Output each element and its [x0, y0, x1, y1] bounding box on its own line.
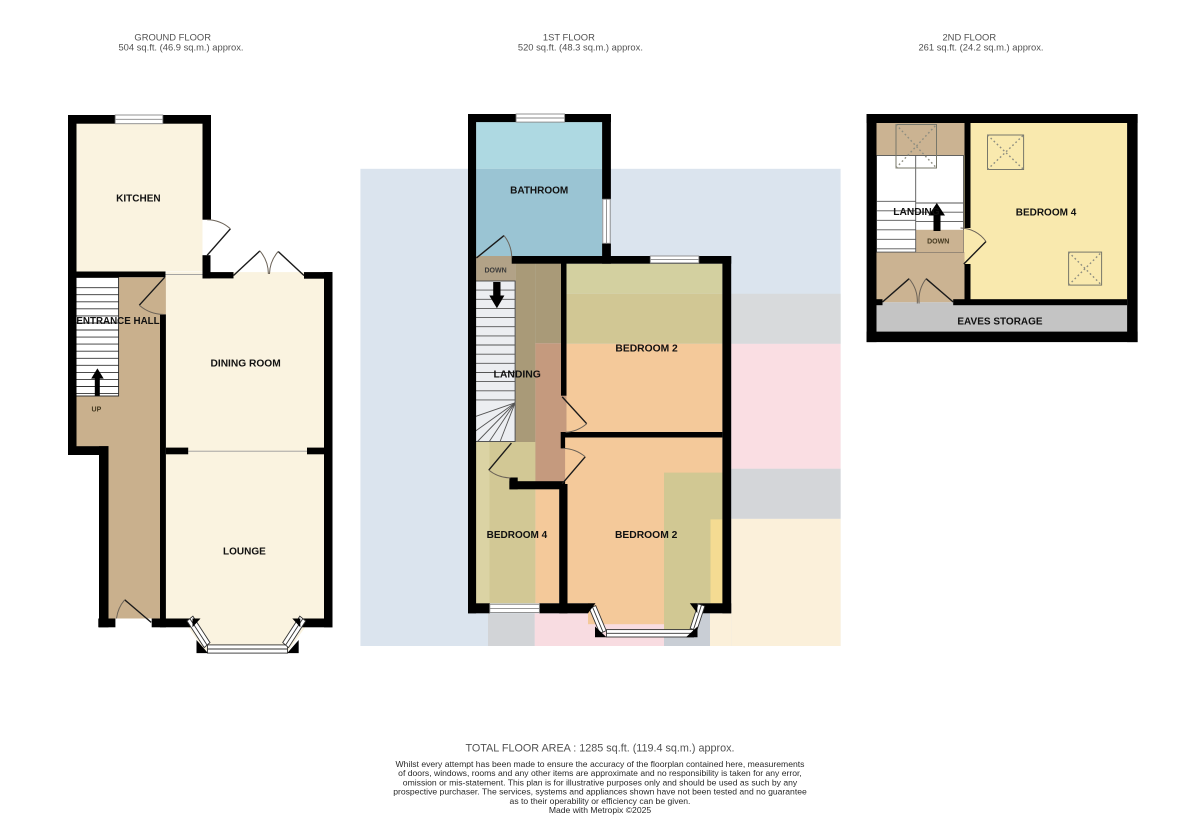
svg-text:UP: UP [92, 406, 102, 413]
svg-text:DINING ROOM: DINING ROOM [211, 358, 281, 369]
svg-text:EAVES STORAGE: EAVES STORAGE [957, 317, 1043, 328]
svg-text:520 sq.ft. (48.3 sq.m.) approx: 520 sq.ft. (48.3 sq.m.) approx. [518, 41, 643, 52]
svg-text:KITCHEN: KITCHEN [116, 194, 160, 205]
svg-text:TOTAL FLOOR AREA : 1285 sq.ft.: TOTAL FLOOR AREA : 1285 sq.ft. (119.4 sq… [465, 743, 734, 755]
svg-text:BEDROOM 2: BEDROOM 2 [615, 530, 678, 541]
svg-text:ENTRANCE HALL: ENTRANCE HALL [76, 316, 159, 327]
svg-text:Made with Metropix ©2025: Made with Metropix ©2025 [549, 805, 652, 815]
svg-text:BEDROOM 4: BEDROOM 4 [487, 530, 548, 541]
svg-text:261 sq.ft. (24.2 sq.m.) approx: 261 sq.ft. (24.2 sq.m.) approx. [918, 41, 1043, 52]
svg-text:DOWN: DOWN [485, 268, 507, 275]
svg-text:DOWN: DOWN [927, 239, 949, 246]
svg-text:LOUNGE: LOUNGE [223, 547, 266, 558]
svg-text:BEDROOM 4: BEDROOM 4 [1016, 208, 1077, 219]
svg-text:LANDING: LANDING [893, 207, 939, 218]
svg-text:BEDROOM 2: BEDROOM 2 [615, 344, 678, 355]
svg-text:BATHROOM: BATHROOM [510, 186, 568, 197]
svg-text:504 sq.ft. (46.9 sq.m.) approx: 504 sq.ft. (46.9 sq.m.) approx. [118, 41, 243, 52]
svg-text:LANDING: LANDING [494, 370, 541, 381]
